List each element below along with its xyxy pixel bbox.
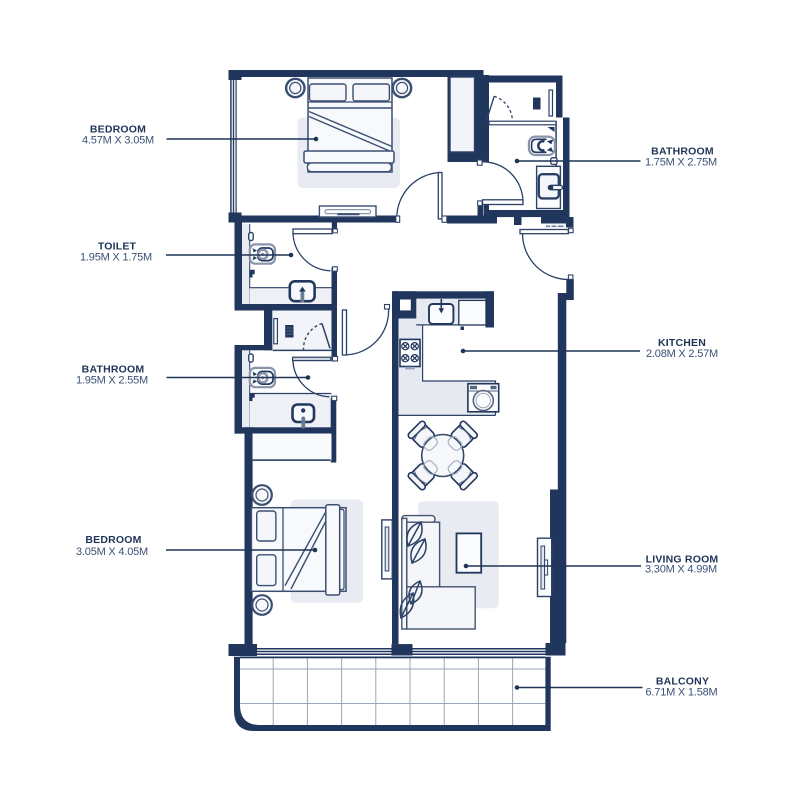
svg-text:1.95M X 1.75M: 1.95M X 1.75M	[80, 252, 152, 264]
svg-text:3.30M X 4.99M: 3.30M X 4.99M	[645, 564, 717, 576]
svg-text:1.95M X 2.55M: 1.95M X 2.55M	[76, 375, 148, 387]
svg-text:6.71M X 1.58M: 6.71M X 1.58M	[646, 687, 718, 699]
svg-text:4.57M X 3.05M: 4.57M X 3.05M	[82, 135, 154, 147]
svg-text:BEDROOM: BEDROOM	[85, 534, 141, 546]
svg-text:2.08M X 2.57M: 2.08M X 2.57M	[646, 348, 718, 360]
svg-text:3.05M X 4.05M: 3.05M X 4.05M	[76, 546, 148, 558]
svg-text:1.75M X 2.75M: 1.75M X 2.75M	[645, 157, 717, 169]
